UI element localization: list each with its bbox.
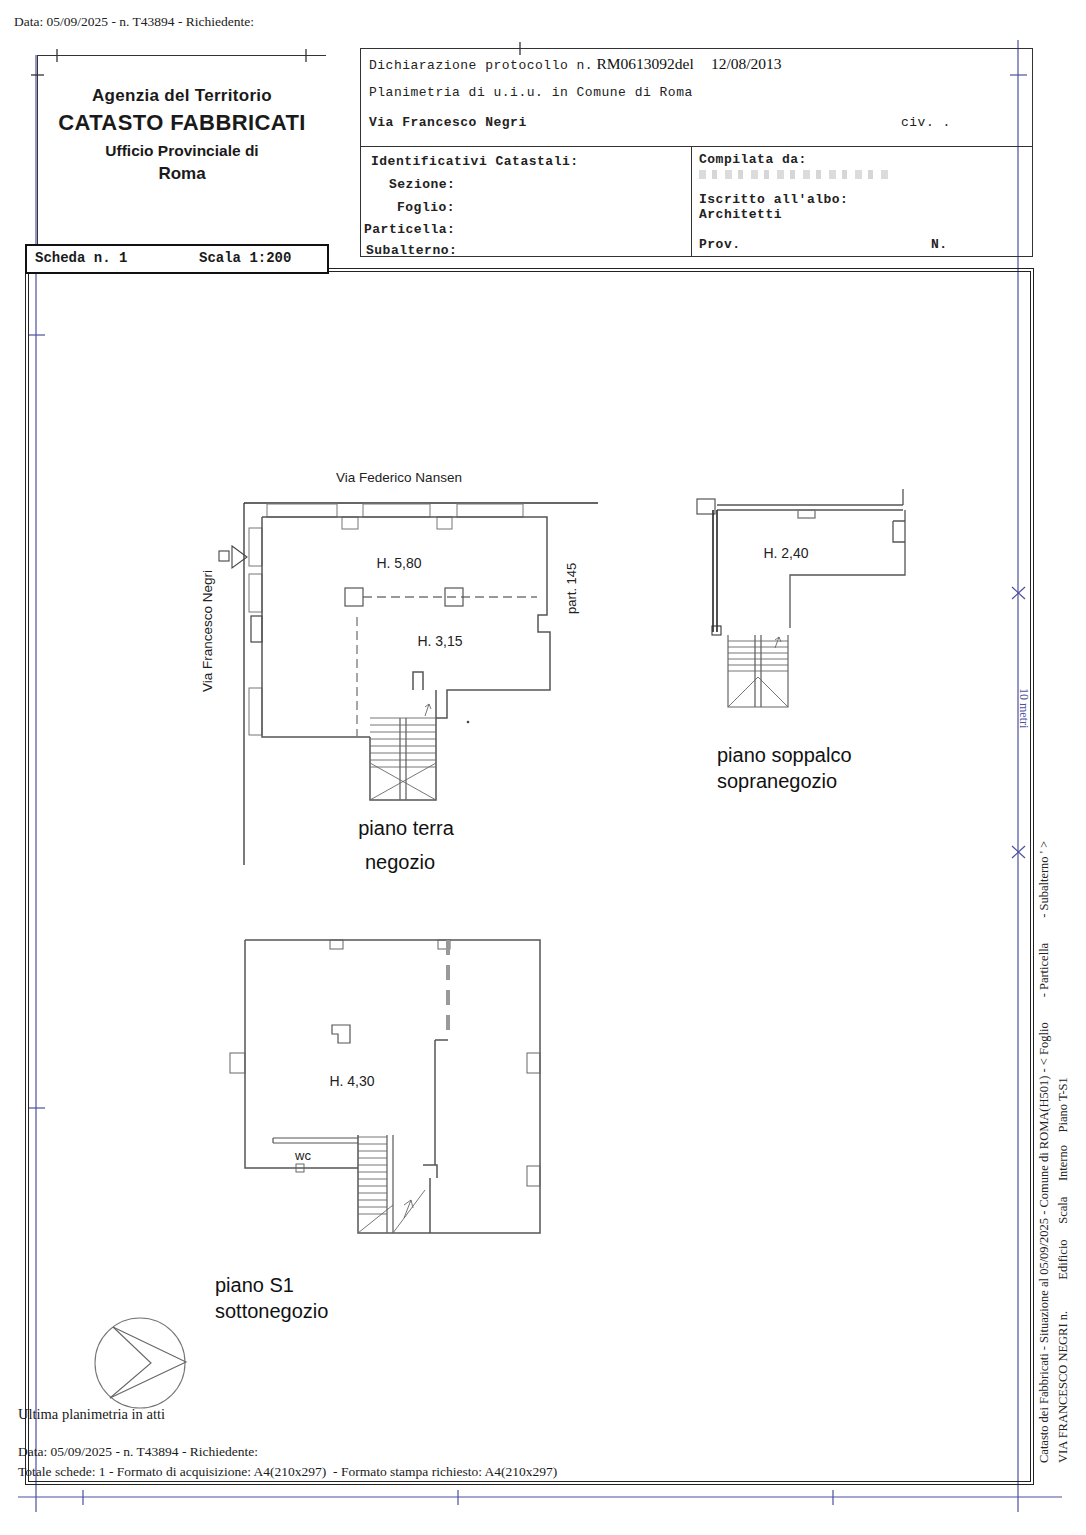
protocol-label: Dichiarazione protocollo n. xyxy=(369,58,593,73)
wc-label: wc xyxy=(295,1148,311,1163)
prov-label: Prov. xyxy=(699,237,741,252)
protocol-number: RM0613092del xyxy=(596,55,693,72)
albo-label: Iscritto all'albo: xyxy=(699,192,848,207)
redacted-signature xyxy=(699,170,889,179)
height-label-low: H. 3,15 xyxy=(400,633,480,649)
mezzanine-caption-1: piano soppalco xyxy=(717,744,852,767)
foglio-label: Foglio: xyxy=(397,200,455,215)
drawing-frame xyxy=(25,268,1034,1485)
street-name-top: Via Federico Nansen xyxy=(319,470,479,485)
margin-address-line: VIA FRANCESCO NEGRI n. Edificio Scala In… xyxy=(1056,1077,1071,1463)
protocol-date: 12/08/2013 xyxy=(711,55,782,72)
basement-caption-2: sottonegozio xyxy=(215,1300,328,1323)
planimetria-line: Planimetria di u.i.u. in Comune di Roma xyxy=(369,85,693,100)
catasto-title: CATASTO FABBRICATI xyxy=(38,110,326,136)
n-label: N. xyxy=(931,237,948,252)
office-line: Ufficio Provinciale di xyxy=(38,142,326,160)
ground-caption-1: piano terra xyxy=(336,817,476,840)
sheet-number: Scheda n. 1 xyxy=(35,250,127,266)
declaration-box: Dichiarazione protocollo n. RM0613092del… xyxy=(360,48,1033,257)
request-header-line: Data: 05/09/2025 - n. T43894 - Richieden… xyxy=(14,14,254,30)
identificativi-cell: Identificativi Catastali: Sezione: Fogli… xyxy=(361,146,692,256)
albo-value: Architetti xyxy=(699,207,782,222)
identificativi-title: Identificativi Catastali: xyxy=(371,154,579,169)
office-city: Roma xyxy=(38,164,326,184)
cadastral-plan-sheet: Data: 05/09/2025 - n. T43894 - Richieden… xyxy=(0,0,1086,1535)
footer-request-line: Data: 05/09/2025 - n. T43894 - Richieden… xyxy=(18,1444,258,1460)
particella-label: Particella: xyxy=(364,222,455,237)
compilata-label: Compilata da: xyxy=(699,152,807,167)
height-label-high: H. 5,80 xyxy=(359,555,439,571)
scale-distance-note: 10 metri xyxy=(1016,688,1031,728)
scale-value: Scala 1:200 xyxy=(199,250,291,266)
ultima-planimetria-note: Ultima planimetria in atti xyxy=(18,1406,165,1423)
parcel-label: part. 145 xyxy=(564,563,579,614)
street-line: Via Francesco Negri xyxy=(369,115,527,130)
declaration-top-row: Dichiarazione protocollo n. RM0613092del… xyxy=(361,49,1032,147)
footer-format-line: Totale schede: 1 - Formato di acquisizio… xyxy=(18,1464,557,1480)
margin-catasto-line: Catasto dei Fabbricati - Situazione al 0… xyxy=(1037,841,1052,1463)
subalterno-label: Subalterno: xyxy=(366,243,457,258)
basement-height-label: H. 4,30 xyxy=(312,1073,392,1089)
ground-caption-2: negozio xyxy=(330,851,470,874)
agency-name: Agenzia del Territorio xyxy=(38,86,326,106)
mezzanine-height-label: H. 2,40 xyxy=(746,545,826,561)
civ-label: civ. . xyxy=(901,115,951,130)
basement-caption-1: piano S1 xyxy=(215,1274,294,1297)
agency-header-box: Agenzia del Territorio CATASTO FABBRICAT… xyxy=(37,55,326,246)
mezzanine-caption-2: sopranegozio xyxy=(717,770,837,793)
sezione-label: Sezione: xyxy=(389,177,455,192)
sheet-scale-box: Scheda n. 1 Scala 1:200 xyxy=(25,244,329,274)
compilata-cell: Compilata da: Iscritto all'albo: Archite… xyxy=(691,146,1032,256)
street-name-left: Via Francesco Negri xyxy=(200,570,215,692)
